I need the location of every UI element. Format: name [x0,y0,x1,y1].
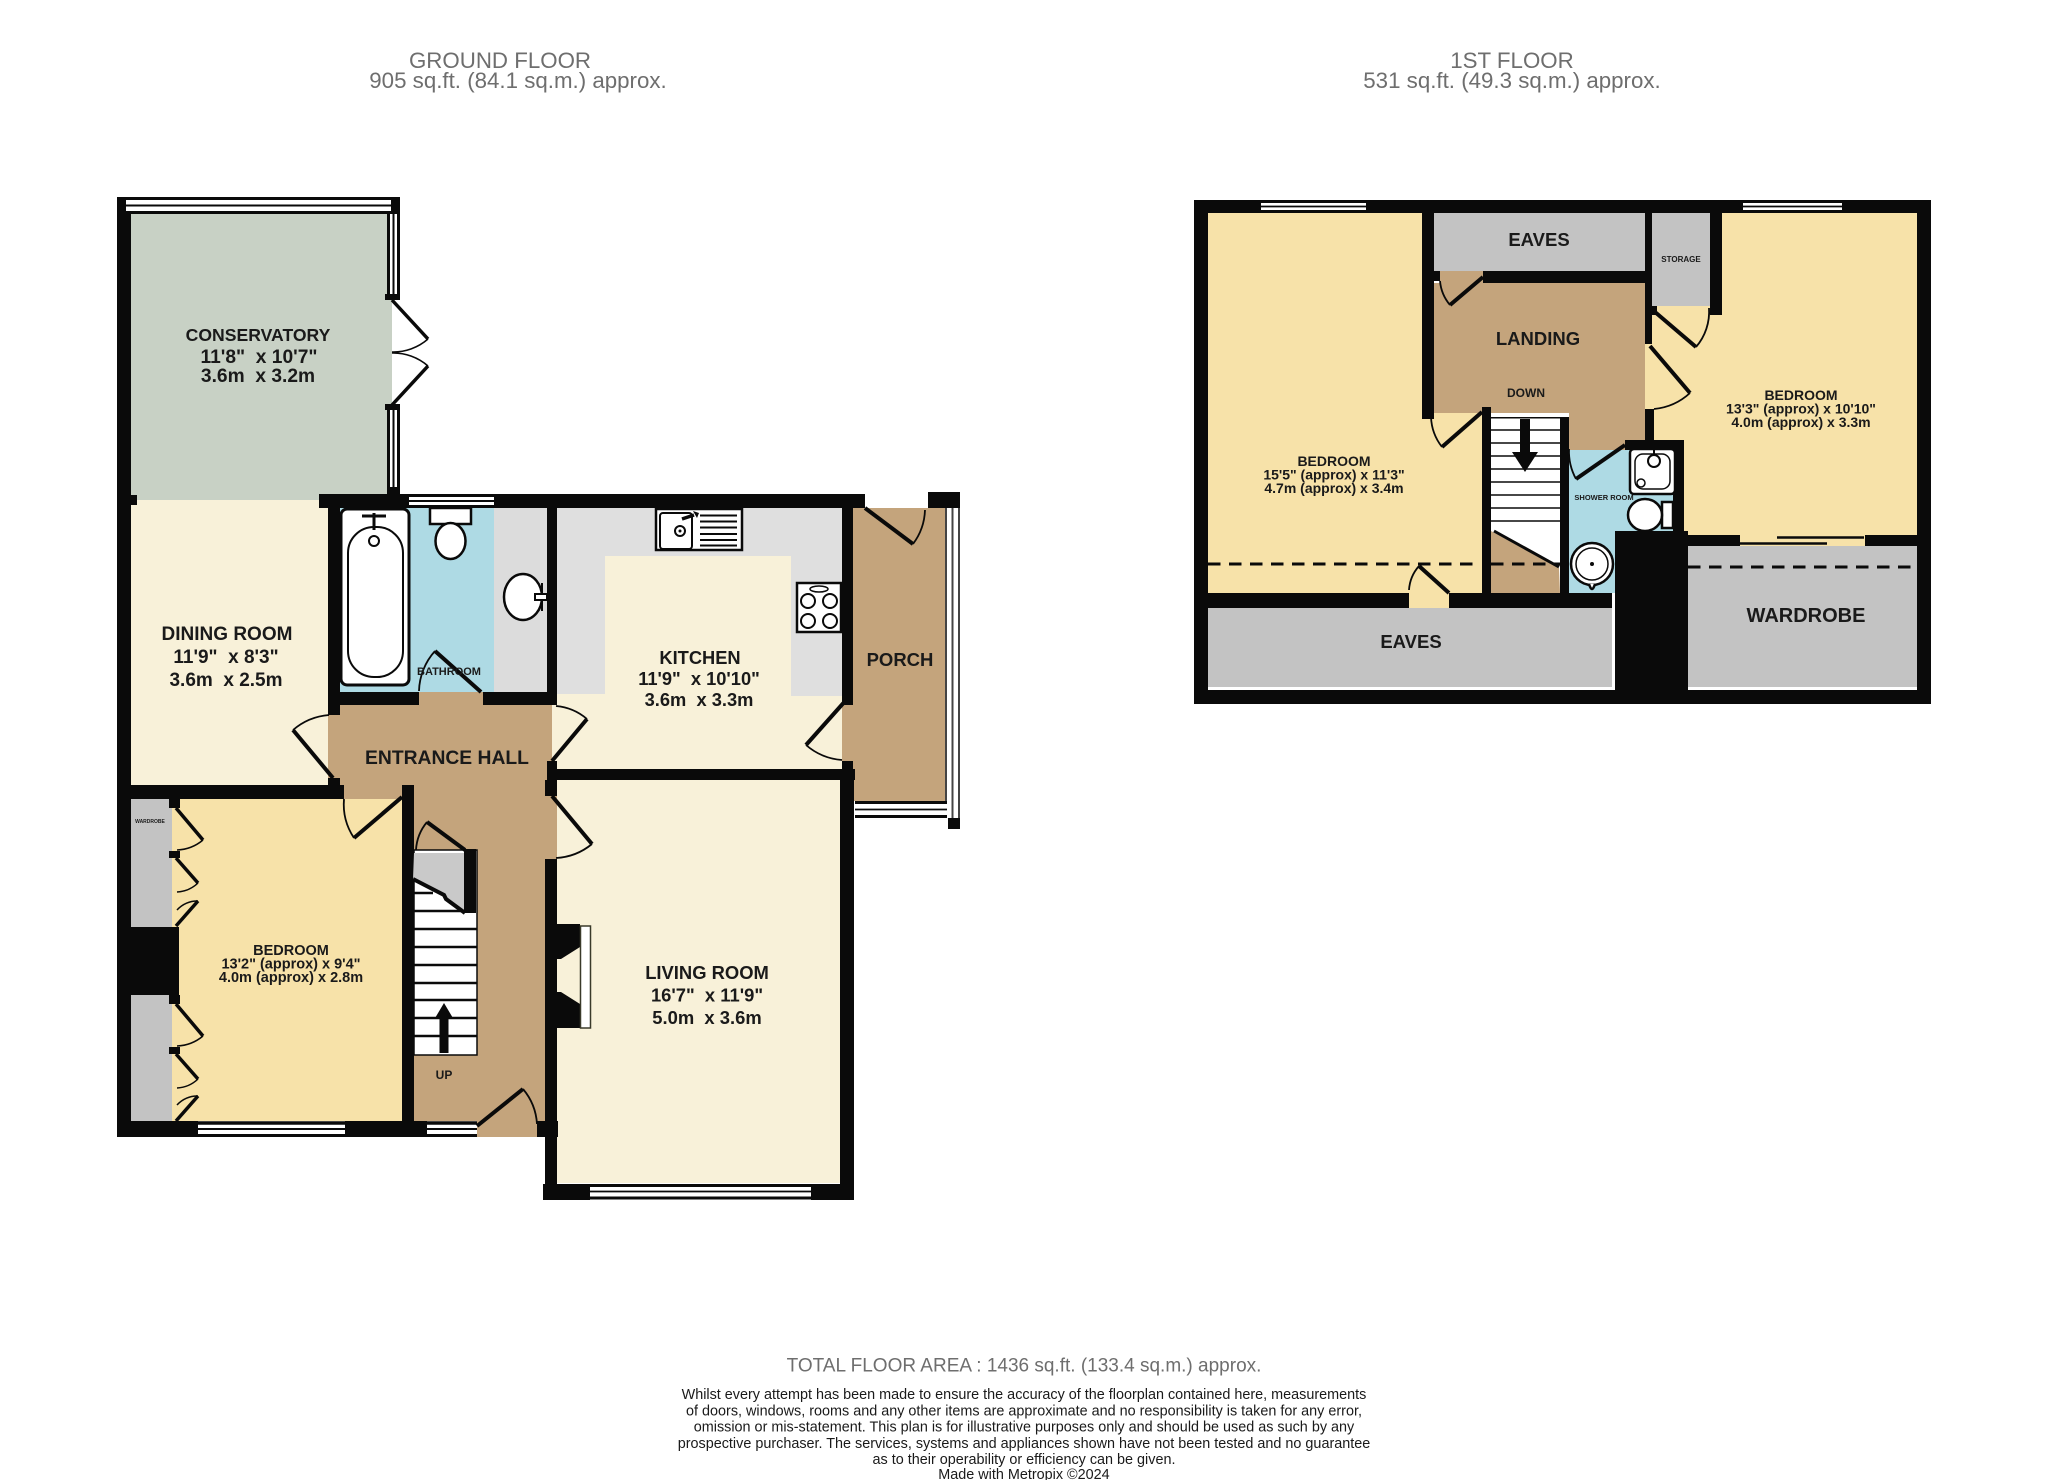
svg-text:4.0m (approx) x 3.3m: 4.0m (approx) x 3.3m [1731,414,1870,430]
svg-text:STORAGE: STORAGE [1661,255,1701,264]
svg-text:BATHROOM: BATHROOM [417,666,481,678]
svg-text:UP: UP [436,1068,453,1082]
svg-text:as to their operability or eff: as to their operability or efficiency ca… [873,1452,1176,1468]
svg-text:prospective purchaser. The ser: prospective purchaser. The services, sys… [678,1436,1371,1452]
svg-text:11'8" x 10'7": 11'8" x 10'7" [201,347,318,368]
svg-text:LANDING: LANDING [1496,328,1580,349]
svg-text:EAVES: EAVES [1508,229,1569,250]
svg-text:11'9" x 8'3": 11'9" x 8'3" [173,647,278,668]
svg-text:WARDROBE: WARDROBE [135,819,165,825]
svg-text:3.6m x 3.3m: 3.6m x 3.3m [645,689,754,710]
svg-text:of doors, windows, rooms and a: of doors, windows, rooms and any other i… [686,1403,1362,1419]
svg-text:WARDROBE: WARDROBE [1747,605,1866,627]
svg-text:16'7" x 11'9": 16'7" x 11'9" [651,985,763,1006]
svg-text:EAVES: EAVES [1380,631,1441,652]
svg-text:KITCHEN: KITCHEN [659,647,740,668]
svg-text:DINING ROOM: DINING ROOM [162,624,293,645]
svg-text:LIVING ROOM: LIVING ROOM [645,962,769,983]
svg-text:Whilst every attempt has been: Whilst every attempt has been made to en… [682,1387,1367,1403]
svg-text:3.6m x 3.2m: 3.6m x 3.2m [201,366,315,387]
svg-text:531 sq.ft. (49.3 sq.m.) approx: 531 sq.ft. (49.3 sq.m.) approx. [1363,68,1660,93]
svg-text:905 sq.ft. (84.1 sq.m.) approx: 905 sq.ft. (84.1 sq.m.) approx. [369,68,666,93]
svg-text:3.6m x 2.5m: 3.6m x 2.5m [169,670,282,691]
svg-text:omission or mis-statement. Thi: omission or mis-statement. This plan is … [694,1420,1355,1436]
svg-text:4.7m (approx) x 3.4m: 4.7m (approx) x 3.4m [1264,480,1403,496]
svg-text:Made with Metropix ©2024: Made with Metropix ©2024 [938,1467,1109,1480]
svg-text:4.0m (approx) x 2.8m: 4.0m (approx) x 2.8m [219,970,363,986]
svg-text:11'9" x 10'10": 11'9" x 10'10" [638,668,760,689]
svg-text:CONSERVATORY: CONSERVATORY [186,325,331,345]
svg-text:DOWN: DOWN [1507,386,1545,400]
svg-text:5.0m x 3.6m: 5.0m x 3.6m [652,1007,761,1028]
svg-text:SHOWER ROOM: SHOWER ROOM [1574,493,1633,502]
svg-text:TOTAL FLOOR AREA : 1436 sq.ft.: TOTAL FLOOR AREA : 1436 sq.ft. (133.4 sq… [787,1356,1262,1377]
svg-text:ENTRANCE HALL: ENTRANCE HALL [365,748,529,769]
svg-text:PORCH: PORCH [867,649,934,670]
